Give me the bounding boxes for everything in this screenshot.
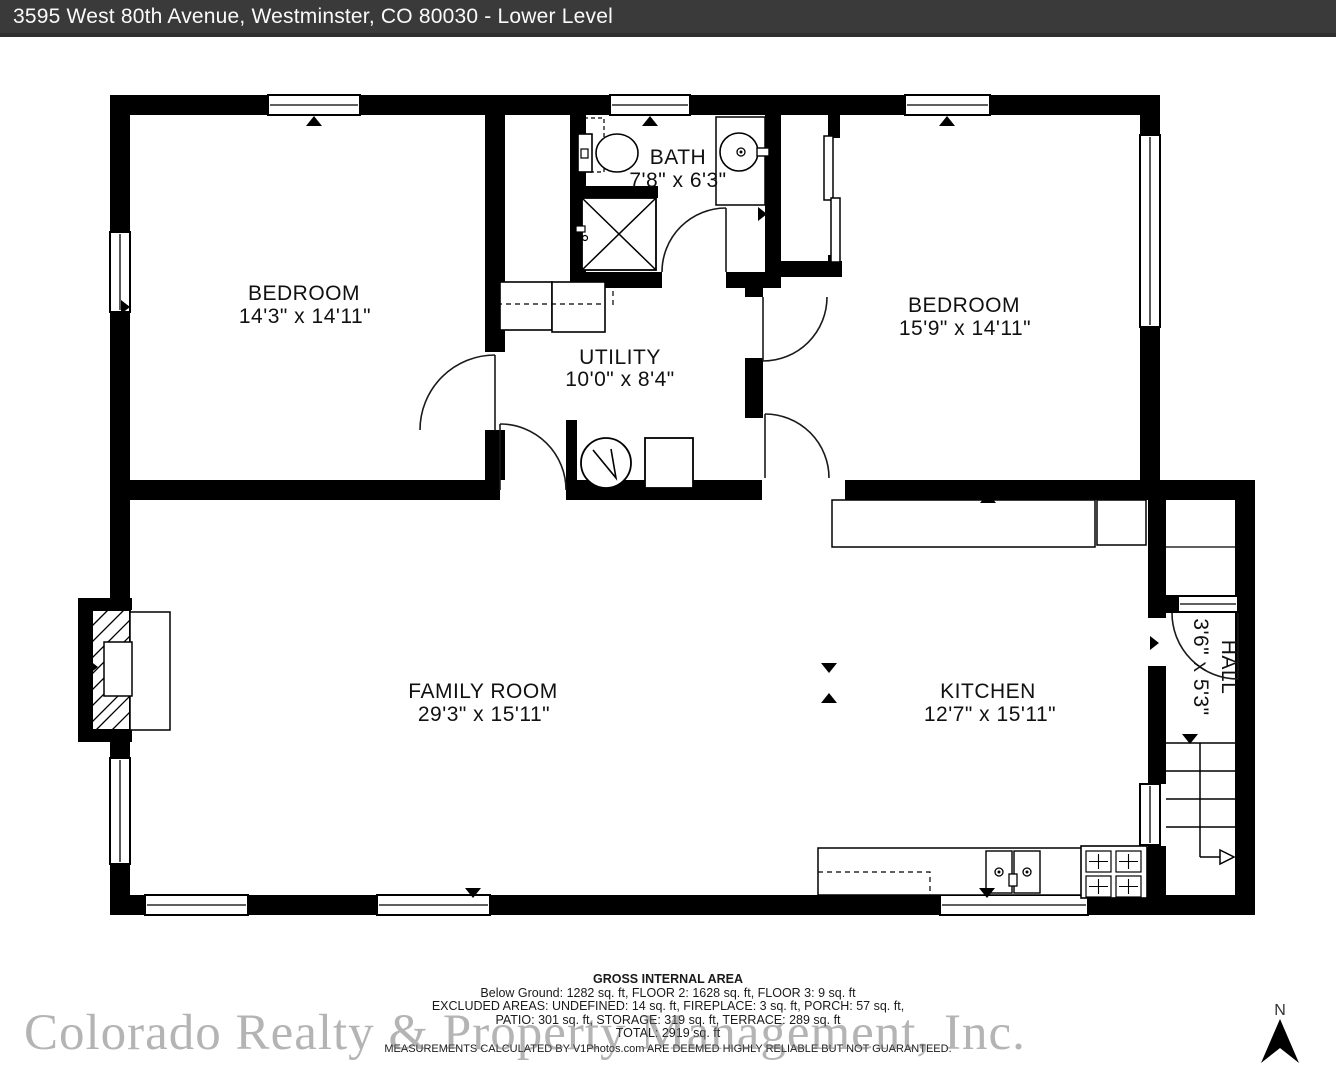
svg-text:BATH: BATH — [650, 146, 706, 169]
room-label-family-room: FAMILY ROOM 29'3" x 15'11" — [408, 680, 557, 726]
water-heater-fixture — [581, 438, 631, 488]
floorplan-page: 3595 West 80th Avenue, Westminster, CO 8… — [0, 0, 1336, 1080]
area-excluded-line-2: PATIO: 301 sq. ft, STORAGE: 319 sq. ft, … — [0, 1014, 1336, 1028]
svg-text:FAMILY ROOM: FAMILY ROOM — [408, 680, 557, 703]
room-label-bedroom-left: BEDROOM 14'3" x 14'11" — [239, 282, 371, 328]
furnace-fixture — [645, 438, 693, 488]
svg-text:BEDROOM: BEDROOM — [248, 282, 360, 305]
svg-text:7'8" x 6'3": 7'8" x 6'3" — [629, 169, 726, 192]
svg-text:UTILITY: UTILITY — [579, 346, 661, 369]
svg-text:14'3" x 14'11": 14'3" x 14'11" — [239, 305, 371, 328]
svg-text:HALL: HALL — [1217, 640, 1240, 695]
area-summary-heading: GROSS INTERNAL AREA — [0, 973, 1336, 987]
area-total-line: TOTAL: 2919 sq. ft — [0, 1027, 1336, 1041]
svg-text:15'9" x 14'11": 15'9" x 14'11" — [899, 317, 1031, 340]
room-label-kitchen: KITCHEN 12'7" x 15'11" — [924, 680, 1056, 726]
disclaimer: MEASUREMENTS CALCULATED BY V1Photos.com … — [0, 1043, 1336, 1057]
svg-text:10'0" x 8'4": 10'0" x 8'4" — [565, 368, 675, 391]
washer-dryer-fixture — [497, 282, 613, 332]
room-label-bedroom-right: BEDROOM 15'9" x 14'11" — [899, 294, 1031, 340]
toilet-fixture — [577, 118, 638, 172]
room-label-bath: BATH 7'8" x 6'3" — [629, 146, 726, 192]
stove-fixture — [1081, 846, 1147, 898]
area-summary: GROSS INTERNAL AREA Below Ground: 1282 s… — [0, 973, 1336, 1057]
svg-text:BEDROOM: BEDROOM — [908, 294, 1020, 317]
room-label-hall: HALL 3'6" x 5'3" — [1189, 618, 1240, 715]
shower-fixture — [576, 198, 656, 270]
svg-text:29'3" x 15'11": 29'3" x 15'11" — [418, 703, 550, 726]
area-floors-line: Below Ground: 1282 sq. ft, FLOOR 2: 1628… — [0, 987, 1336, 1001]
svg-text:3'6" x 5'3": 3'6" x 5'3" — [1189, 618, 1212, 715]
doors — [420, 208, 1238, 679]
svg-text:KITCHEN: KITCHEN — [940, 680, 1036, 703]
fireplace — [89, 610, 170, 730]
floor-plan: BEDROOM 14'3" x 14'11" BATH 7'8" x 6'3" … — [0, 0, 1336, 1080]
stair-direction-arrow-icon — [1220, 850, 1234, 864]
svg-text:12'7" x 15'11": 12'7" x 15'11" — [924, 703, 1056, 726]
area-excluded-line-1: EXCLUDED AREAS: UNDEFINED: 14 sq. ft, FI… — [0, 1000, 1336, 1014]
room-label-utility: UTILITY 10'0" x 8'4" — [565, 346, 675, 391]
